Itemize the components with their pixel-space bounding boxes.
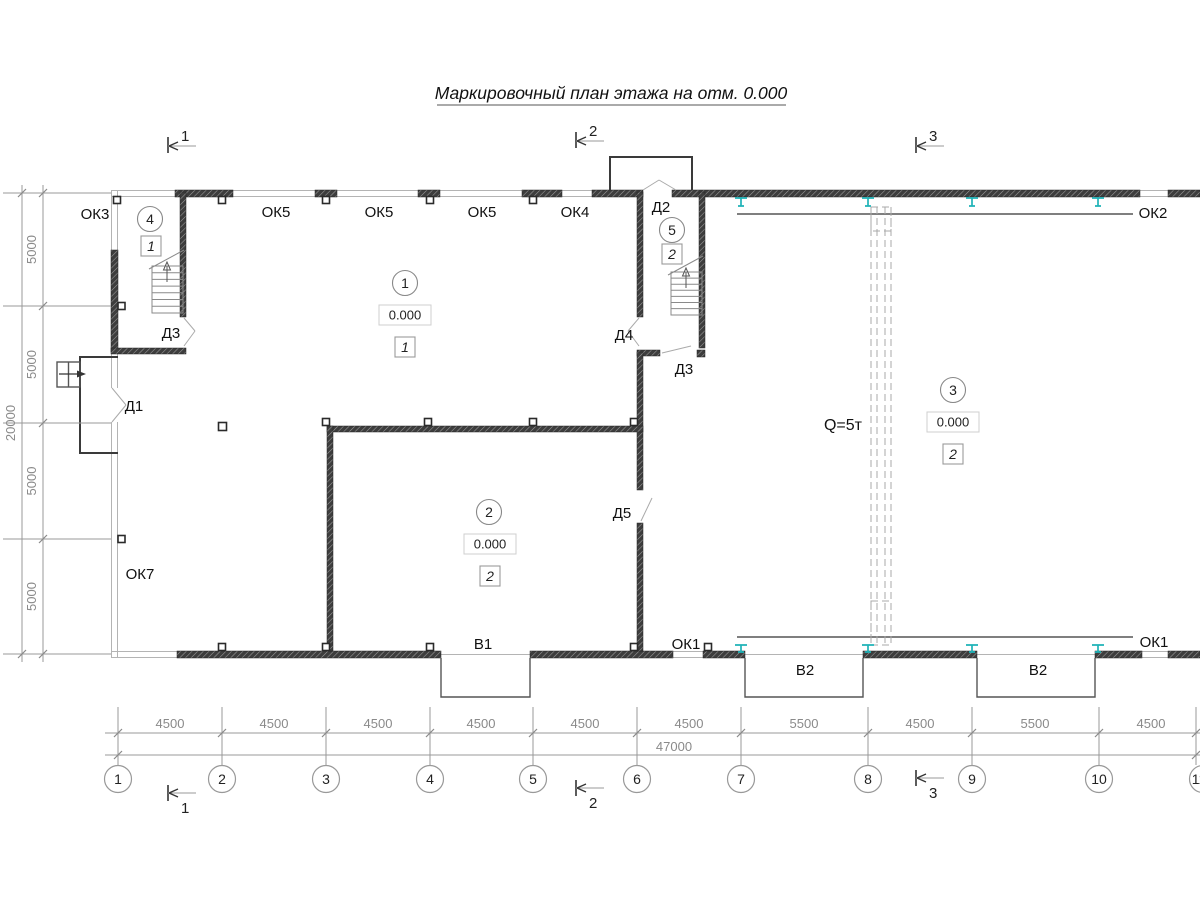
axis-5: 5 [529, 771, 537, 787]
steel-column-icon [966, 198, 978, 206]
room-marker-2: 2 0.000 2 [464, 500, 516, 587]
exterior-walls-glazing [111, 190, 1200, 658]
label-ok1: ОК1 [1140, 634, 1169, 651]
dim-4500: 4500 [906, 716, 935, 731]
dim-4500: 4500 [364, 716, 393, 731]
room-marker-1: 1 0.000 1 [379, 271, 431, 358]
dim-4500: 4500 [675, 716, 704, 731]
label-ok5: ОК5 [365, 204, 394, 221]
column-markers [114, 197, 712, 651]
crane-bridge-top [871, 207, 891, 231]
label-ok3: ОК3 [81, 206, 110, 223]
dim-5500: 5500 [1021, 716, 1050, 731]
section-mark-1-bottom: 1 [168, 785, 196, 817]
label-d2: Д2 [652, 199, 671, 216]
dim-4500: 4500 [1137, 716, 1166, 731]
entrance-arrow-head [77, 371, 86, 378]
stair-room5 [668, 256, 703, 315]
axis-1: 1 [114, 771, 122, 787]
label-ok4: ОК4 [561, 204, 590, 221]
room-marker-5: 5 2 [660, 218, 685, 265]
dim-total-47000: 47000 [656, 739, 692, 754]
steel-column-icon [862, 198, 874, 206]
stair-room4 [149, 250, 184, 313]
door-d3-room4-swing [184, 318, 195, 331]
dim-4500: 4500 [156, 716, 185, 731]
label-ok5: ОК5 [468, 204, 497, 221]
gate-recesses [441, 658, 1095, 697]
section-1-number: 1 [181, 128, 189, 145]
room-marker-3: 3 0.000 2 [927, 378, 979, 465]
section-2-number: 2 [589, 795, 597, 812]
steel-column-icon [1092, 198, 1104, 206]
axis-3: 3 [322, 771, 330, 787]
gate-v1-recess [441, 658, 530, 697]
entrance-porch [57, 357, 118, 453]
section-3-number: 3 [929, 128, 937, 145]
room3-number: 3 [949, 382, 957, 398]
door-d5-swing [641, 498, 652, 521]
section-1-number: 1 [181, 800, 189, 817]
section-3-number: 3 [929, 785, 937, 802]
label-ok1: ОК1 [672, 636, 701, 653]
room2-elevation: 0.000 [474, 537, 507, 552]
label-d1: Д1 [125, 398, 144, 415]
dim-5000: 5000 [24, 582, 39, 611]
label-d3-room5: Д3 [675, 361, 694, 378]
room2-number: 2 [485, 504, 493, 520]
section-2-number: 2 [589, 123, 597, 140]
room4-type: 1 [147, 238, 155, 254]
room4-number: 4 [146, 211, 154, 227]
room3-elevation: 0.000 [937, 415, 970, 430]
left-dimensions: 5000 5000 5000 5000 20000 [3, 185, 111, 662]
axis-10: 10 [1091, 771, 1107, 787]
axis-11: 11 [1192, 771, 1200, 787]
room1-elevation: 0.000 [389, 308, 422, 323]
section-mark-3-top: 3 [916, 128, 944, 153]
dim-total-20000: 20000 [3, 405, 18, 441]
masonry-walls [111, 190, 1200, 658]
steel-column-symbols [735, 198, 1104, 652]
floor-plan-canvas: Маркировочный план этажа на отм. 0.000 1… [0, 0, 1200, 900]
dim-5000: 5000 [24, 235, 39, 264]
floor-plan-drawing: Маркировочный план этажа на отм. 0.000 1… [0, 0, 1200, 900]
dim-4500: 4500 [571, 716, 600, 731]
door-d3-room5-swing [662, 346, 691, 353]
dim-4500: 4500 [260, 716, 289, 731]
axis-bubbles: 1 2 3 4 5 6 7 8 9 10 11 [105, 766, 1200, 793]
room1-number: 1 [401, 275, 409, 291]
label-ok2: ОК2 [1139, 205, 1168, 222]
room-marker-4: 4 1 [138, 207, 163, 257]
label-ok5: ОК5 [262, 204, 291, 221]
crane-bridge-bottom [871, 601, 891, 645]
room5-number: 5 [668, 222, 676, 238]
room3-type: 2 [948, 446, 957, 462]
section-mark-3-bottom: 3 [916, 770, 944, 802]
section-mark-2-top: 2 [576, 123, 604, 148]
label-d4: Д4 [615, 327, 634, 344]
dim-5000: 5000 [24, 467, 39, 496]
label-d3-room4: Д3 [162, 325, 181, 342]
axis-6: 6 [633, 771, 641, 787]
steel-column-icon [735, 198, 747, 206]
label-ok7: ОК7 [126, 566, 155, 583]
room5-type: 2 [667, 246, 676, 262]
dim-5500: 5500 [790, 716, 819, 731]
axis-9: 9 [968, 771, 976, 787]
axis-7: 7 [737, 771, 745, 787]
axis-4: 4 [426, 771, 434, 787]
title-text: Маркировочный план этажа на отм. 0.000 [435, 83, 788, 103]
section-mark-2-bottom: 2 [576, 780, 604, 812]
section-mark-1-top: 1 [168, 128, 196, 153]
label-v1: В1 [474, 636, 492, 653]
room1-type: 1 [401, 339, 409, 355]
label-d5: Д5 [613, 505, 632, 522]
bottom-dimensions: 4500 4500 4500 4500 4500 4500 5500 4500 … [105, 707, 1200, 765]
room2-type: 2 [485, 568, 494, 584]
opening-labels: ОК3 ОК5 ОК5 ОК5 ОК4 Д2 ОК2 ОК7 Д3 Д4 Д3 … [81, 199, 1169, 679]
free-column-axis2 [219, 423, 227, 431]
axis-8: 8 [864, 771, 872, 787]
dim-4500: 4500 [467, 716, 496, 731]
drawing-title: Маркировочный план этажа на отм. 0.000 [435, 83, 788, 105]
label-v2: В2 [796, 662, 814, 679]
axis-2: 2 [218, 771, 226, 787]
crane-capacity-label: Q=5т [824, 417, 863, 434]
label-v2: В2 [1029, 662, 1047, 679]
door-d2-swing [643, 180, 659, 190]
dim-5000: 5000 [24, 350, 39, 379]
